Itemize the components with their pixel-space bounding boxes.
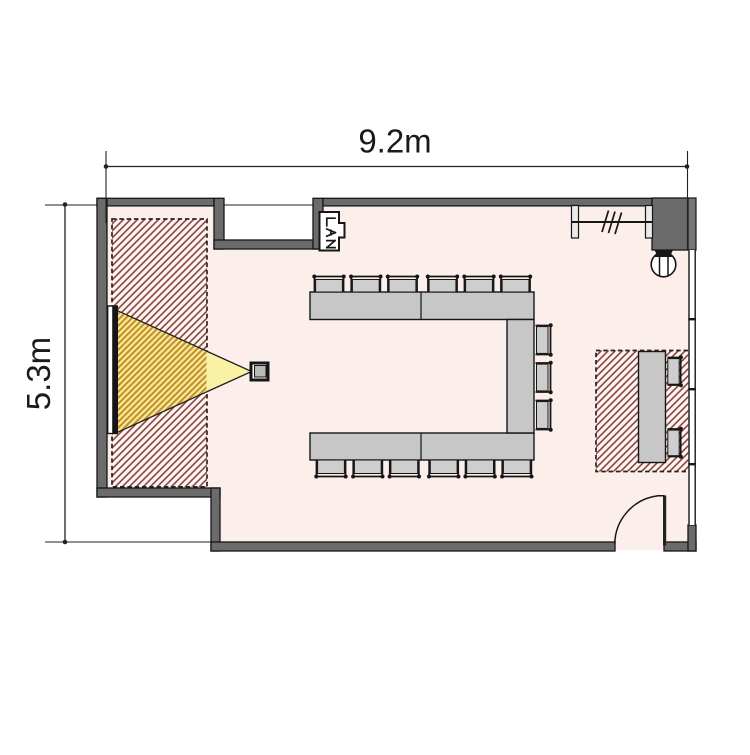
svg-text:9.2m: 9.2m <box>358 123 431 160</box>
svg-text:5.3m: 5.3m <box>20 337 57 410</box>
